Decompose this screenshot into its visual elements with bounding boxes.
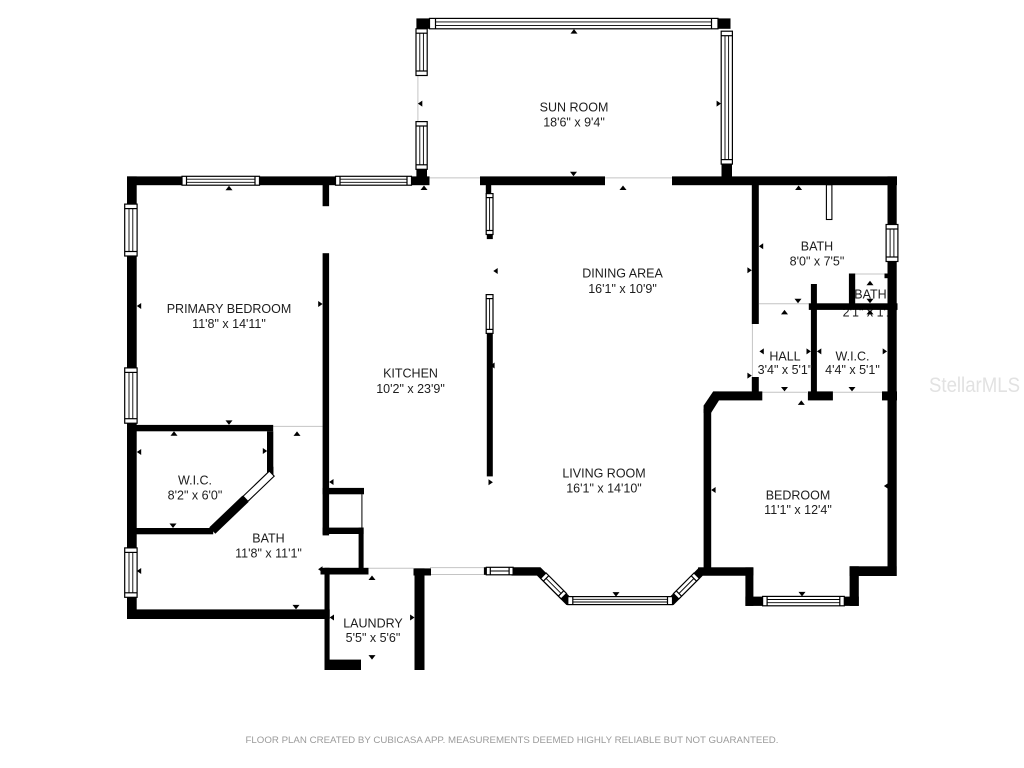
svg-text:18'6" x 9'4": 18'6" x 9'4" <box>543 115 605 129</box>
svg-text:11'8" x 11'1": 11'8" x 11'1" <box>235 546 302 560</box>
svg-text:8'2" x 6'0": 8'2" x 6'0" <box>168 488 223 502</box>
svg-text:W.I.C.: W.I.C. <box>178 474 212 488</box>
svg-text:3'4" x 5'1": 3'4" x 5'1" <box>758 363 813 377</box>
svg-text:HALL: HALL <box>769 349 800 363</box>
svg-text:LIVING ROOM: LIVING ROOM <box>562 467 645 481</box>
svg-text:11'1" x 12'4": 11'1" x 12'4" <box>764 503 832 517</box>
svg-text:16'1" x 10'9": 16'1" x 10'9" <box>588 282 657 296</box>
svg-text:BATH: BATH <box>801 240 833 254</box>
svg-text:16'1" x 14'10": 16'1" x 14'10" <box>566 481 642 495</box>
svg-text:10'2" x 23'9": 10'2" x 23'9" <box>376 382 445 396</box>
svg-text:StellarMLS: StellarMLS <box>929 373 1020 397</box>
svg-text:BEDROOM: BEDROOM <box>766 488 831 502</box>
svg-text:11'8" x 14'11": 11'8" x 14'11" <box>192 317 266 331</box>
svg-text:FLOOR PLAN CREATED BY CUBICASA: FLOOR PLAN CREATED BY CUBICASA APP. MEAS… <box>246 735 779 746</box>
svg-text:4'4" x 5'1": 4'4" x 5'1" <box>825 363 880 377</box>
svg-text:SUN ROOM: SUN ROOM <box>540 101 609 115</box>
svg-text:BATH: BATH <box>252 532 284 546</box>
svg-text:PRIMARY BEDROOM: PRIMARY BEDROOM <box>167 302 292 316</box>
svg-text:LAUNDRY: LAUNDRY <box>343 616 403 630</box>
svg-text:W.I.C.: W.I.C. <box>835 349 869 363</box>
svg-text:5'5" x 5'6": 5'5" x 5'6" <box>346 631 401 645</box>
svg-text:DINING AREA: DINING AREA <box>582 267 663 281</box>
svg-text:8'0" x 7'5": 8'0" x 7'5" <box>790 254 845 268</box>
svg-text:KITCHEN: KITCHEN <box>383 366 438 380</box>
svg-text:BATH: BATH <box>854 287 886 301</box>
